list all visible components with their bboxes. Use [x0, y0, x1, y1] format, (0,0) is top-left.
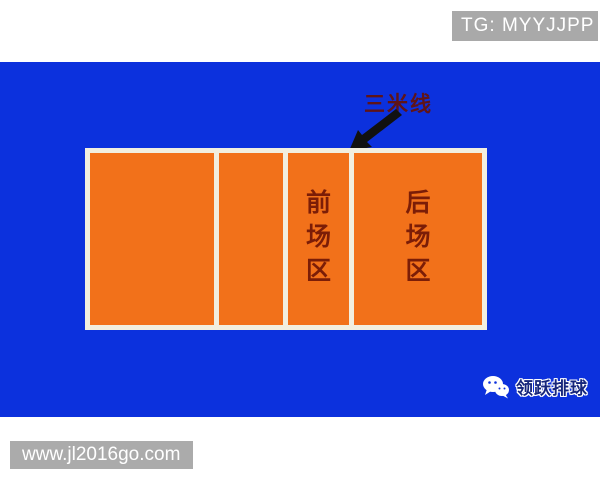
front-zone-char: 区	[306, 254, 331, 288]
wechat-icon	[482, 375, 510, 399]
diagram-background: 三米线 前 场 区 后 场 区	[0, 62, 600, 417]
court-section-left-front	[219, 153, 283, 325]
website-watermark: www.jl2016go.com	[10, 441, 193, 469]
volleyball-court: 前 场 区 后 场 区	[85, 148, 487, 330]
court-section-back-zone: 后 场 区	[354, 153, 482, 325]
tg-badge: TG: MYYJJPP	[452, 11, 598, 41]
court-section-front-zone: 前 场 区	[288, 153, 349, 325]
back-zone-label: 后 场 区	[405, 186, 430, 288]
front-zone-char: 前	[306, 186, 331, 220]
brand-name-text: 领跃排球	[516, 374, 588, 399]
front-zone-label: 前 场 区	[306, 186, 331, 288]
brand-logo: 领跃排球	[482, 374, 588, 399]
page: TG: MYYJJPP 三米线 前 场 区 后 场 区	[0, 0, 600, 480]
back-zone-char: 后	[405, 186, 430, 220]
front-zone-char: 场	[306, 220, 331, 254]
back-zone-char: 区	[405, 254, 430, 288]
court-section-left-back	[90, 153, 214, 325]
back-zone-char: 场	[405, 220, 430, 254]
